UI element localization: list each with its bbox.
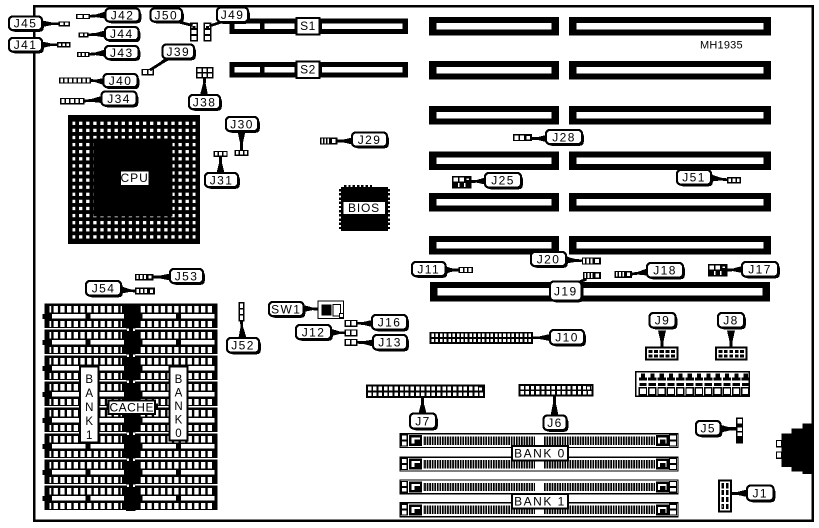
svg-text:S1: S1 [300, 19, 316, 33]
svg-text:J41: J41 [14, 38, 38, 52]
svg-text:B: B [85, 374, 93, 386]
svg-text:J20: J20 [537, 252, 561, 266]
svg-text:N: N [85, 402, 93, 414]
svg-text:A: A [175, 387, 183, 399]
svg-text:J6: J6 [547, 416, 562, 430]
svg-text:J43: J43 [110, 46, 134, 60]
svg-text:J17: J17 [748, 263, 772, 277]
svg-text:SW1: SW1 [271, 302, 301, 316]
svg-text:CPU: CPU [121, 171, 149, 185]
svg-text:J38: J38 [193, 95, 217, 109]
svg-text:CACHE: CACHE [109, 400, 154, 414]
svg-text:J34: J34 [107, 92, 131, 106]
svg-text:BANK 1: BANK 1 [514, 495, 566, 509]
svg-text:S2: S2 [300, 63, 316, 77]
svg-text:J54: J54 [92, 282, 116, 296]
svg-text:0: 0 [175, 428, 181, 440]
svg-text:J31: J31 [210, 173, 234, 187]
svg-text:J25: J25 [491, 174, 515, 188]
svg-text:J7: J7 [415, 414, 430, 428]
svg-text:J29: J29 [358, 133, 382, 147]
svg-text:J19: J19 [554, 284, 578, 298]
svg-text:A: A [85, 388, 93, 400]
svg-text:BANK 0: BANK 0 [514, 447, 566, 461]
svg-text:K: K [175, 415, 183, 427]
svg-text:J13: J13 [378, 336, 402, 350]
svg-text:J10: J10 [555, 331, 579, 345]
svg-text:J53: J53 [175, 269, 199, 283]
svg-text:J51: J51 [682, 171, 706, 185]
svg-text:J18: J18 [653, 264, 677, 278]
svg-text:B: B [175, 374, 183, 386]
svg-text:BIOS: BIOS [348, 201, 380, 215]
svg-text:J45: J45 [14, 17, 38, 31]
svg-text:J30: J30 [230, 117, 254, 131]
svg-text:J52: J52 [231, 339, 255, 353]
svg-text:J5: J5 [701, 422, 716, 436]
svg-text:J9: J9 [655, 314, 670, 328]
svg-text:MH1935: MH1935 [700, 40, 743, 52]
svg-text:J49: J49 [221, 8, 245, 22]
svg-text:J11: J11 [417, 262, 440, 276]
svg-text:J44: J44 [110, 27, 134, 41]
svg-text:J40: J40 [109, 74, 133, 88]
svg-text:1: 1 [86, 430, 92, 442]
svg-text:J16: J16 [378, 316, 402, 330]
svg-text:N: N [174, 401, 182, 413]
svg-text:J39: J39 [166, 45, 190, 59]
svg-text:J12: J12 [302, 325, 326, 339]
svg-text:K: K [85, 416, 93, 428]
svg-text:J28: J28 [552, 130, 576, 144]
svg-text:J50: J50 [154, 8, 178, 22]
svg-text:J42: J42 [111, 8, 135, 22]
svg-text:J8: J8 [723, 314, 738, 328]
svg-text:J1: J1 [753, 486, 768, 500]
